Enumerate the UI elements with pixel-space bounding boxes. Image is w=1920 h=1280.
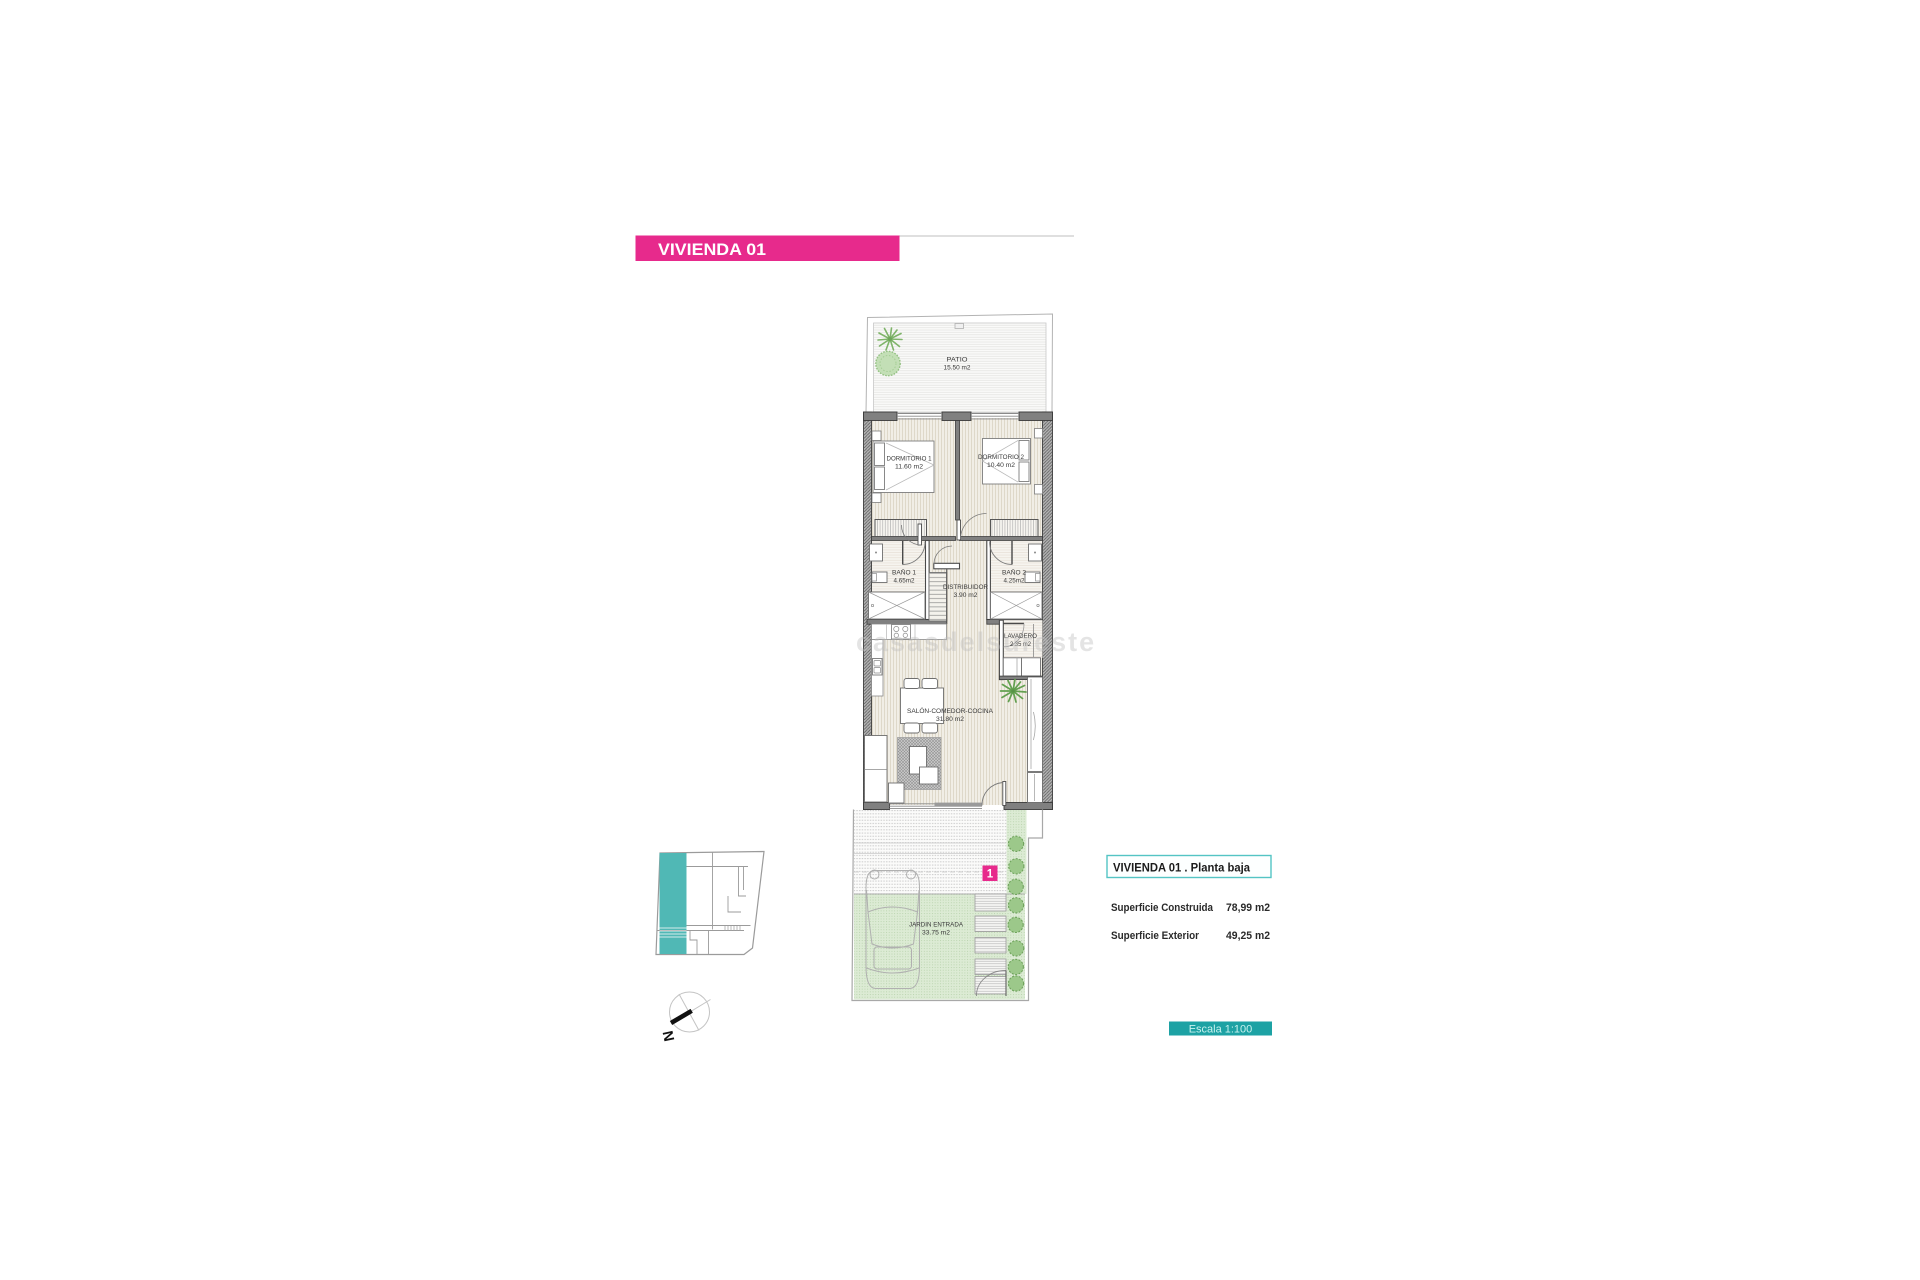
svg-text:DORMITORIO 2: DORMITORIO 2 bbox=[978, 454, 1024, 461]
svg-text:PATIO: PATIO bbox=[947, 357, 968, 364]
svg-text:10.40 m2: 10.40 m2 bbox=[987, 462, 1015, 469]
svg-text:78,99 m2: 78,99 m2 bbox=[1226, 902, 1270, 914]
svg-text:3.90 m2: 3.90 m2 bbox=[954, 592, 978, 599]
svg-text:DISTRIBUIDOR: DISTRIBUIDOR bbox=[943, 584, 988, 591]
svg-text:casasdelsureste: casasdelsureste bbox=[856, 627, 1096, 657]
svg-text:VIVIENDA 01: VIVIENDA 01 bbox=[658, 241, 766, 259]
svg-text:SALÓN-COMEDOR-COCINA: SALÓN-COMEDOR-COCINA bbox=[907, 706, 993, 715]
svg-text:Superficie Construida: Superficie Construida bbox=[1111, 902, 1213, 914]
svg-text:DORMITORIO 1: DORMITORIO 1 bbox=[887, 456, 932, 463]
svg-text:VIVIENDA 01 . Planta baja: VIVIENDA 01 . Planta baja bbox=[1113, 861, 1250, 875]
svg-text:4.65m2: 4.65m2 bbox=[894, 578, 915, 585]
svg-text:49,25 m2: 49,25 m2 bbox=[1226, 930, 1270, 942]
svg-text:4.25m2: 4.25m2 bbox=[1004, 578, 1025, 585]
svg-text:BAÑO 2: BAÑO 2 bbox=[1002, 568, 1026, 577]
svg-text:Superficie Exterior: Superficie Exterior bbox=[1111, 930, 1199, 942]
svg-text:15.50 m2: 15.50 m2 bbox=[944, 365, 971, 372]
svg-text:31.80 m2: 31.80 m2 bbox=[936, 716, 964, 723]
svg-text:1: 1 bbox=[987, 869, 994, 881]
svg-text:JARDIN ENTRADA: JARDIN ENTRADA bbox=[909, 922, 963, 929]
svg-text:11.60 m2: 11.60 m2 bbox=[895, 464, 923, 471]
svg-text:33.75 m2: 33.75 m2 bbox=[922, 930, 950, 937]
svg-text:Escala 1:100: Escala 1:100 bbox=[1189, 1024, 1253, 1036]
svg-text:BAÑO 1: BAÑO 1 bbox=[892, 568, 916, 577]
